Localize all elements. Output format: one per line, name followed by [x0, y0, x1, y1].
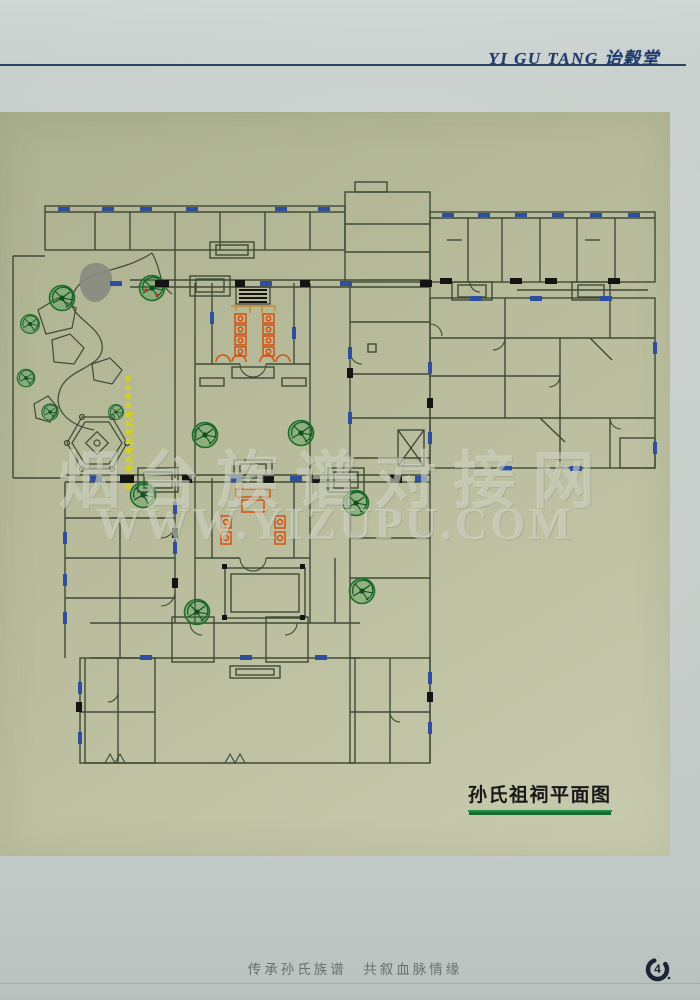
door-swing-symbols	[105, 282, 621, 763]
plan-caption: 孙氏祖祠平面图	[468, 780, 612, 812]
red-blossom-dot	[155, 293, 158, 296]
footer-rule	[0, 983, 700, 984]
red-blossom-dot	[144, 288, 147, 291]
floor-plan-drawing	[0, 112, 670, 856]
scanned-book-page: YI GU TANG 诒榖堂	[0, 0, 700, 1000]
page-number: 4	[644, 956, 671, 983]
page-number-badge: 4	[644, 956, 674, 986]
plan-walls	[13, 182, 655, 763]
footer-slogan: 传承孙氏族谱 共叙血脉情缘	[0, 958, 700, 978]
page-header-title: YI GU TANG 诒榖堂	[488, 44, 660, 69]
hall-furniture	[216, 287, 290, 544]
floor-plan-panel: 烟台族谱对接网 WWW.YIZUPU.COM 孙氏祖祠平面图	[0, 112, 670, 856]
